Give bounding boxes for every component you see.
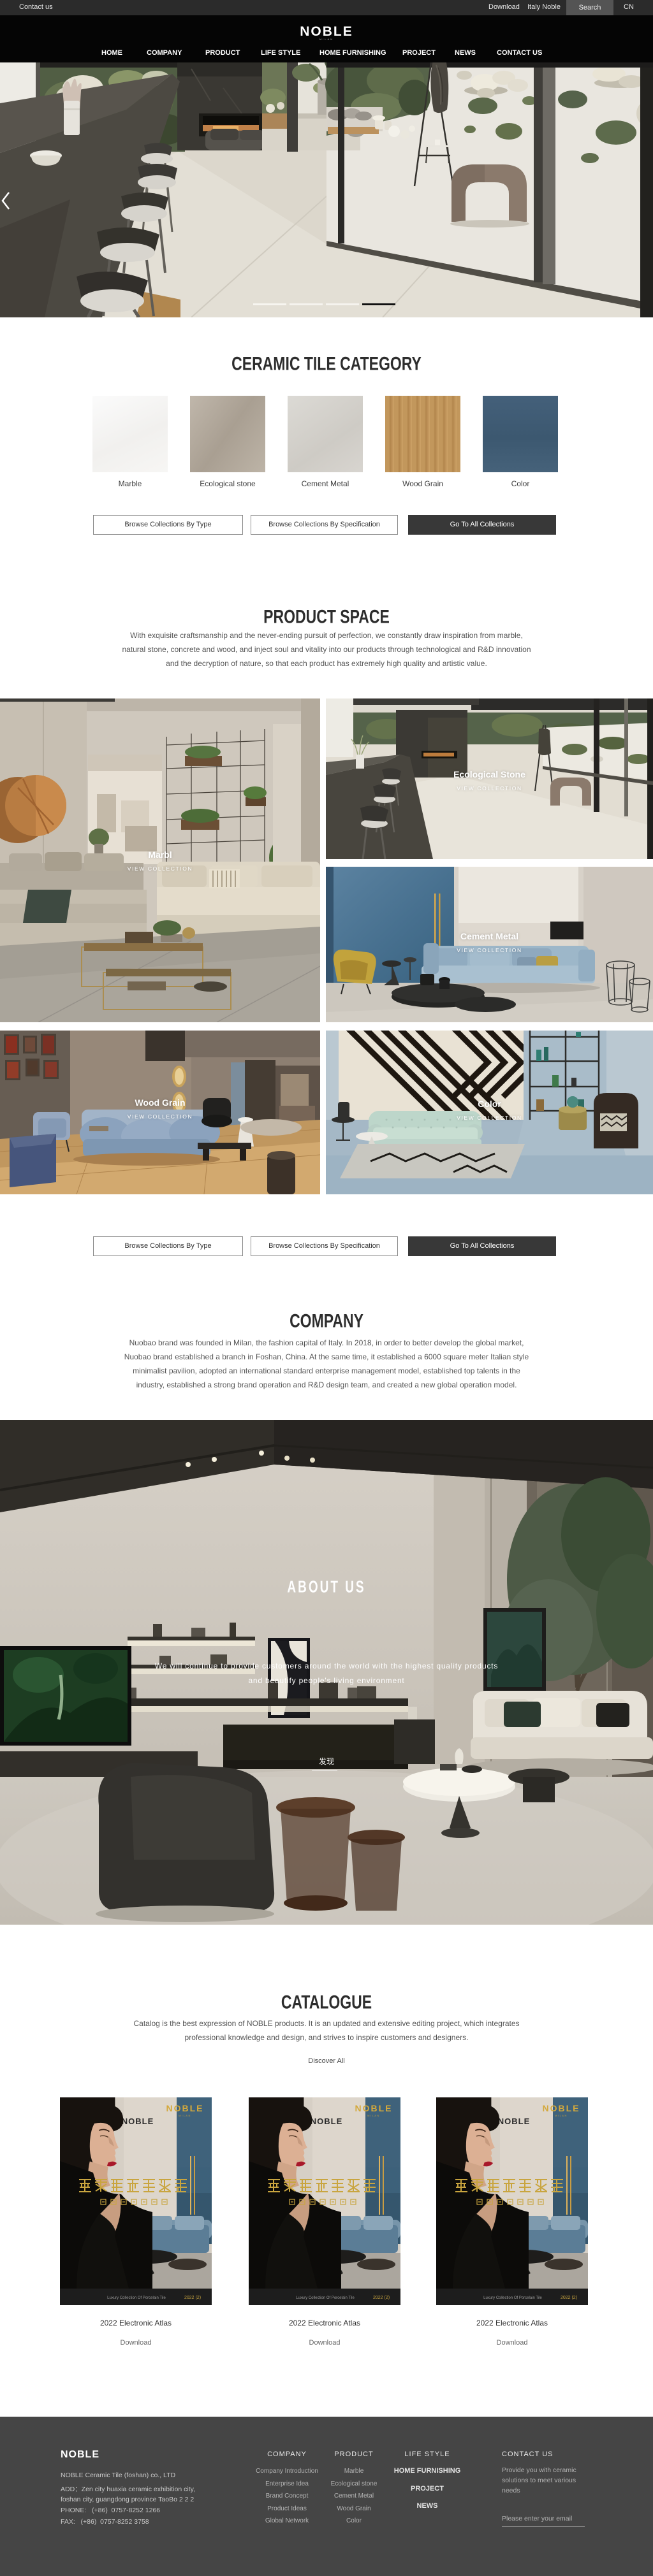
svg-text:MILAN: MILAN [179, 2114, 191, 2117]
svg-text:2022 (2): 2022 (2) [184, 2296, 201, 2300]
svg-text:NOBLE: NOBLE [122, 2117, 154, 2126]
svg-text:Luxury Collection Of Porcelain: Luxury Collection Of Porcelain Tile [107, 2296, 166, 2300]
svg-text:NOBLE: NOBLE [166, 2103, 204, 2113]
